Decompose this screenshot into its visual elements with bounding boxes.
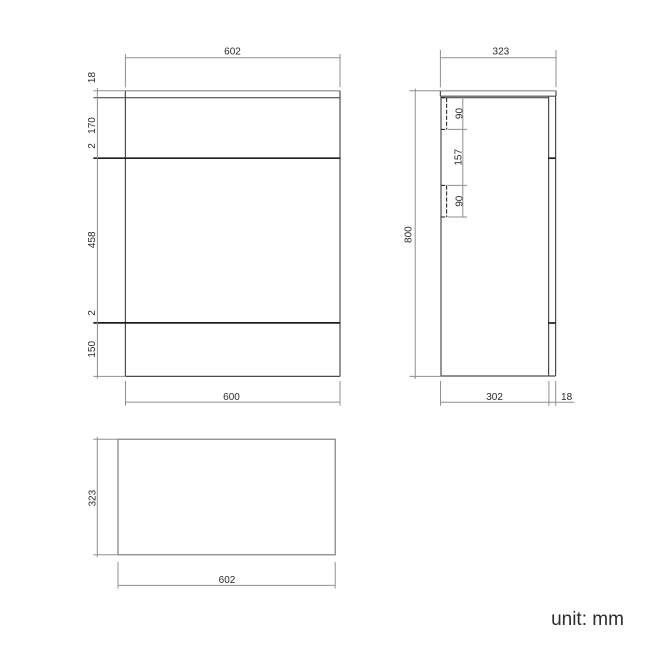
svg-text:302: 302	[486, 392, 503, 403]
svg-text:90: 90	[454, 108, 465, 120]
svg-text:18: 18	[561, 392, 573, 403]
svg-text:90: 90	[454, 195, 465, 207]
svg-text:600: 600	[223, 392, 240, 403]
svg-text:2: 2	[87, 143, 98, 149]
svg-text:323: 323	[493, 47, 510, 58]
svg-text:170: 170	[87, 117, 98, 134]
svg-text:157: 157	[453, 149, 464, 166]
svg-text:unit: mm: unit: mm	[551, 609, 624, 630]
svg-text:800: 800	[404, 226, 415, 243]
svg-text:602: 602	[219, 575, 236, 586]
svg-text:18: 18	[87, 72, 98, 84]
svg-text:458: 458	[87, 231, 98, 248]
svg-text:2: 2	[87, 310, 98, 316]
svg-text:150: 150	[87, 341, 98, 358]
svg-text:323: 323	[88, 489, 99, 506]
svg-text:602: 602	[224, 47, 241, 58]
